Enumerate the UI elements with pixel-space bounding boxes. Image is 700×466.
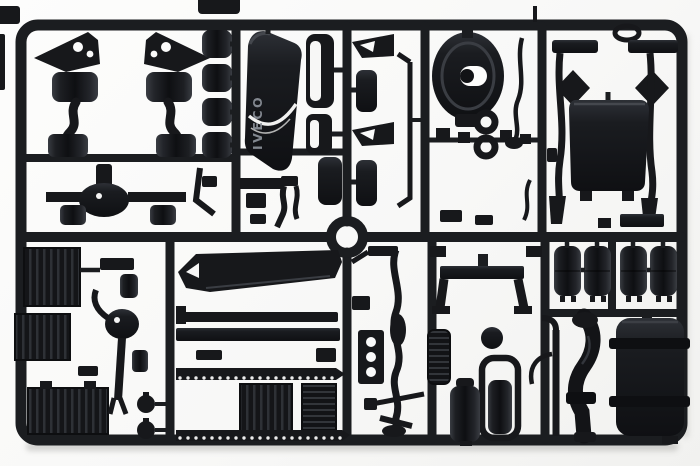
- center-ring: [331, 221, 363, 253]
- fuel-tank: [609, 310, 690, 444]
- step-tread-lower: [176, 430, 350, 441]
- front-spoiler: [178, 250, 342, 292]
- knob-pins: [137, 392, 170, 439]
- mirror-housings: [306, 34, 344, 154]
- sprue-photo: IVECO: [0, 0, 700, 466]
- three-hole-bracket: [358, 330, 424, 410]
- battery-box: [15, 314, 70, 360]
- small-muffler: [428, 330, 450, 384]
- roof-bar: [598, 214, 664, 228]
- radiator-core: [302, 384, 336, 430]
- radiator-box: [24, 248, 138, 306]
- molded-brand-text: IVECO: [250, 95, 265, 150]
- cab-rear-panel: [569, 92, 649, 201]
- suspension-arm-left: [34, 32, 100, 157]
- exhaust-muffler-a: [450, 378, 480, 446]
- fuel-cap-disc: [481, 327, 503, 349]
- sprue-illustration: IVECO: [0, 0, 700, 466]
- cab-step-brackets: [240, 157, 342, 227]
- exhaust-muffler-b: [488, 380, 512, 434]
- cross-member: [430, 246, 542, 314]
- intercooler-box: [28, 381, 108, 434]
- chassis-rails: [176, 306, 340, 362]
- linkage-rod: [398, 54, 422, 206]
- front-axle-differential: [46, 164, 217, 225]
- exhaust-downpipe: [542, 312, 598, 442]
- towing-rings: [477, 113, 495, 156]
- step-tread-upper: [176, 368, 345, 380]
- suspension-arm-right: [144, 32, 210, 157]
- ring-gasket: [615, 26, 639, 40]
